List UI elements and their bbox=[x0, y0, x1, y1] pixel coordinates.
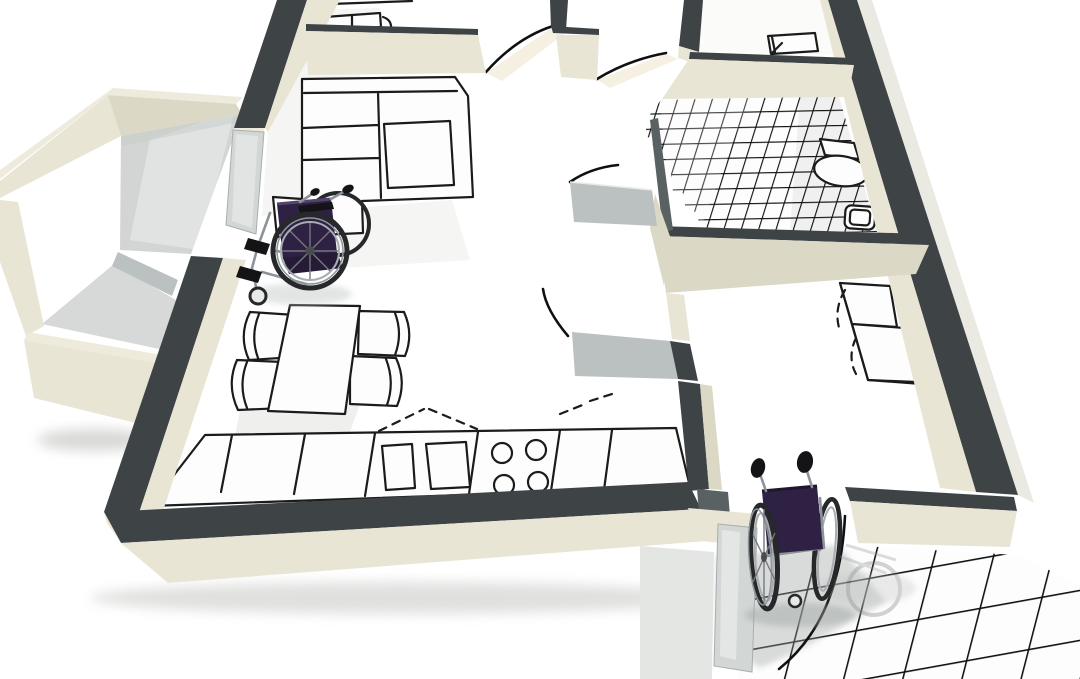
dining-chair bbox=[358, 311, 409, 356]
dining-chair bbox=[350, 356, 402, 406]
building-drop-shadow bbox=[90, 582, 710, 614]
balcony-southwest-wall bbox=[0, 200, 44, 336]
bathroom-north-face bbox=[662, 59, 854, 99]
floor-plan-render bbox=[0, 0, 1080, 679]
door-arc-bedroom bbox=[543, 289, 568, 336]
porch-west-face bbox=[640, 546, 714, 679]
dining-set bbox=[232, 305, 410, 414]
handle-grip bbox=[795, 450, 815, 474]
front-caster bbox=[250, 288, 266, 304]
footplate bbox=[244, 238, 270, 255]
floor-plan-svg bbox=[0, 0, 1080, 679]
handle-grip bbox=[749, 457, 768, 480]
wheel-hub bbox=[306, 247, 315, 256]
hall-stub-band bbox=[550, 0, 568, 30]
door-light-spill bbox=[486, 27, 568, 81]
caster bbox=[789, 595, 801, 607]
wheel-hub bbox=[761, 552, 767, 562]
cabinet-door-dashes bbox=[379, 394, 612, 431]
door-arc-bathroom bbox=[570, 165, 618, 182]
hall-stub-b bbox=[572, 332, 678, 379]
rear-wheel-near bbox=[273, 214, 347, 288]
living-top-wall-face bbox=[306, 31, 486, 75]
coffee-table bbox=[384, 121, 454, 188]
bathroom-south-face bbox=[659, 236, 929, 293]
bedroom-west-wall bbox=[666, 293, 690, 341]
footplate bbox=[236, 266, 262, 283]
hall-stub-face bbox=[556, 35, 599, 80]
bathroom-nw-stub bbox=[679, 0, 703, 52]
balcony-west-wall-inner bbox=[0, 95, 121, 198]
